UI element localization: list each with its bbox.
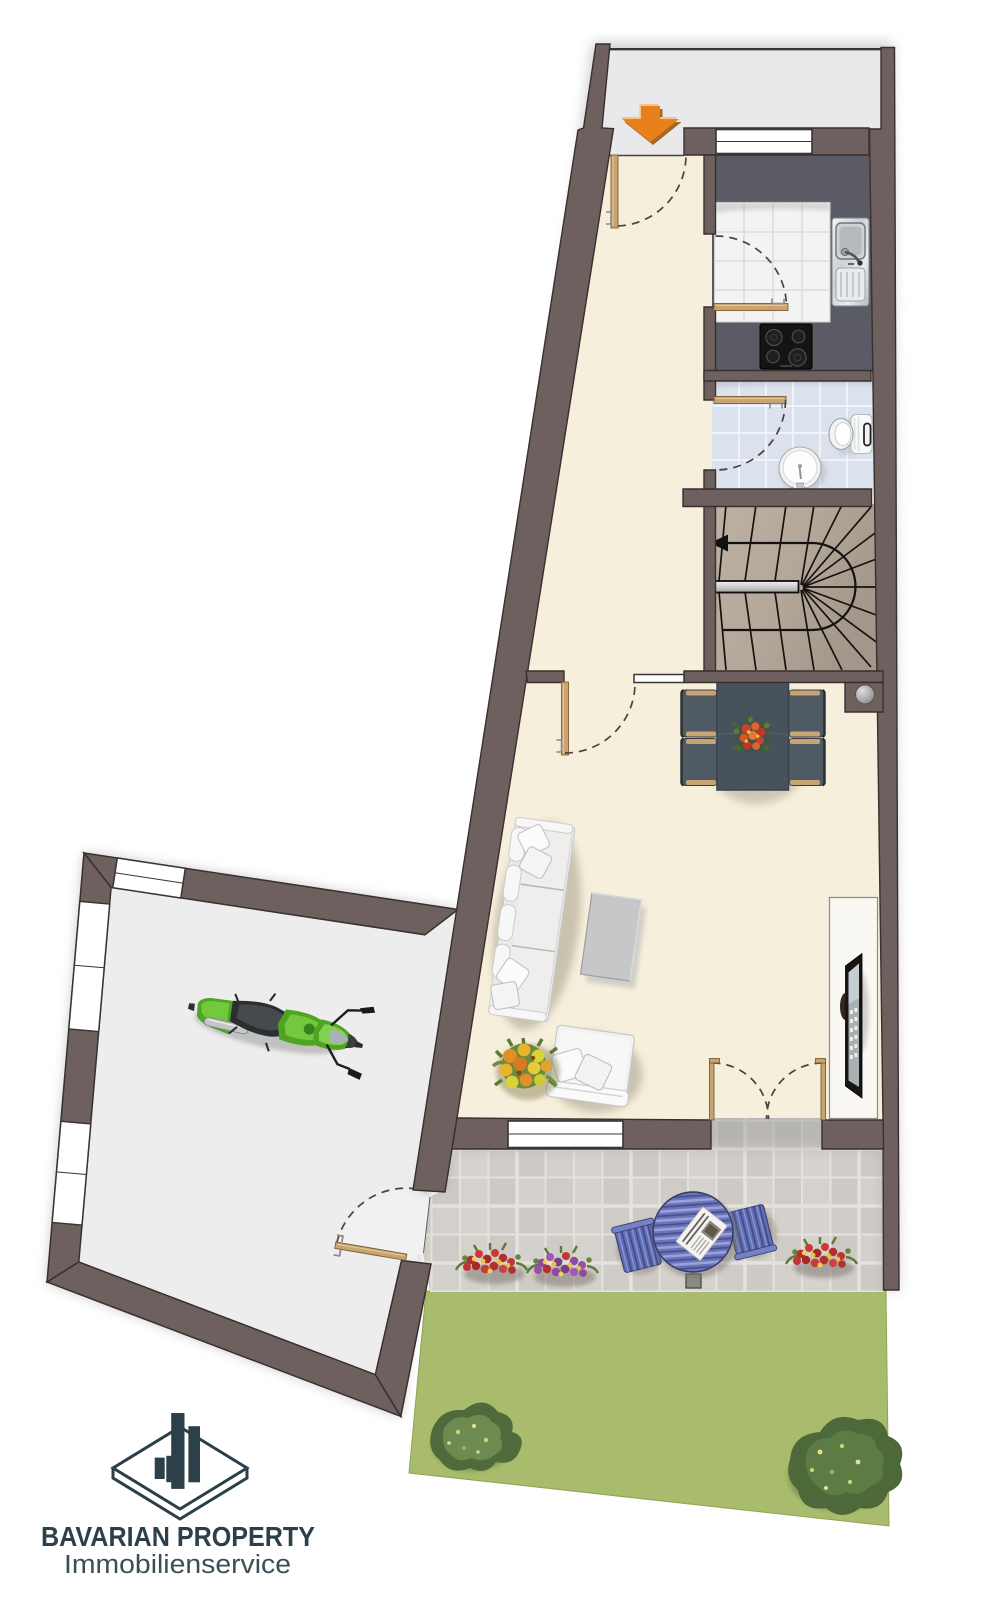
svg-text:Immobilienservice: Immobilienservice: [64, 1551, 291, 1579]
svg-text:BAVARIAN PROPERTY: BAVARIAN PROPERTY: [41, 1521, 315, 1552]
